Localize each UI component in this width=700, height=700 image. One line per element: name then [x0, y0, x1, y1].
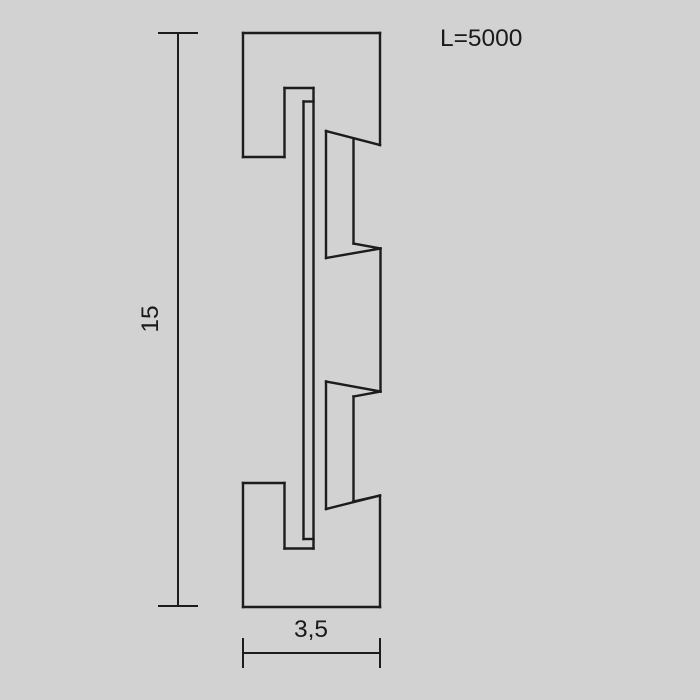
profile-drawing: 15 3,5 L=5000: [0, 0, 700, 700]
width-dimension-label: 3,5: [294, 616, 328, 643]
technical-drawing-canvas: 15 3,5 L=5000: [0, 0, 700, 700]
profile-outline: [243, 33, 381, 607]
height-dimension-label: 15: [137, 305, 164, 332]
length-label: L=5000: [440, 25, 522, 52]
height-dimension-line: [158, 33, 198, 606]
